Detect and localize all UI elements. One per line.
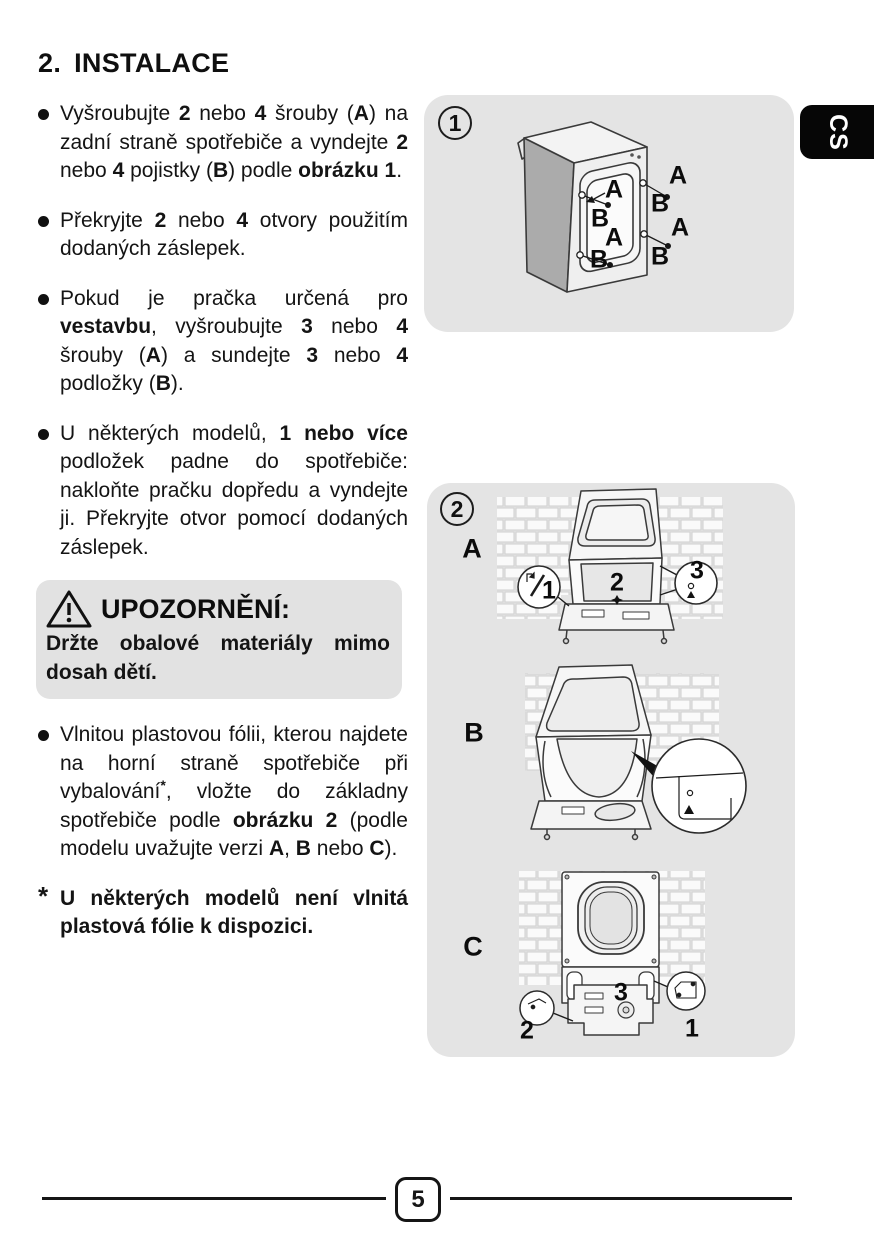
callout-number-3: 3 xyxy=(614,979,628,1008)
bullet-dot-icon xyxy=(38,429,49,440)
text-segment: , vyšroubujte xyxy=(151,315,301,338)
text-segment: šrouby ( xyxy=(266,102,353,125)
bullet-text: Vlnitou plastovou fólii, kterou najdete … xyxy=(60,721,408,864)
text-segment: 4 xyxy=(255,102,267,125)
text-segment: 2 xyxy=(179,102,191,125)
section-title-number: 2. xyxy=(38,48,61,78)
text-segment: nebo xyxy=(191,102,255,125)
section-title-text: INSTALACE xyxy=(74,48,229,78)
page-number-box: 5 xyxy=(395,1177,441,1222)
figure-number: 2 xyxy=(451,496,464,523)
bullet-dot-icon xyxy=(38,216,49,227)
text-segment: ). xyxy=(385,837,398,860)
text-segment: Vyšroubujte xyxy=(60,102,179,125)
bullet-item: Pokud je pračka určená pro vestavbu, vyš… xyxy=(38,285,408,399)
warning-title: UPOZORNĚNÍ: xyxy=(101,594,290,625)
footnote-text: U některých modelů není vlnitá plastová … xyxy=(60,885,408,942)
callout-number-3: 3 xyxy=(690,557,704,586)
callout-number-2: 2 xyxy=(520,1017,534,1046)
warning-header: UPOZORNĚNÍ: xyxy=(46,589,390,629)
text-segment: obrázku 1 xyxy=(298,159,396,182)
text-segment: 4 xyxy=(396,344,408,367)
bullet-dot-icon xyxy=(38,730,49,741)
bullet-item: Vlnitou plastovou fólii, kterou najdete … xyxy=(38,721,408,864)
figure-1: 1 A B A B A B A B xyxy=(424,95,794,332)
text-segment: 1 nebo více xyxy=(280,422,408,445)
callout-label-b: B xyxy=(590,246,608,275)
text-segment: nebo xyxy=(166,209,236,232)
text-segment: . xyxy=(396,159,402,182)
callout-label-a: A xyxy=(671,214,689,243)
text-segment: ). xyxy=(171,372,184,395)
bullet-item: U některých modelů, 1 nebo více podložek… xyxy=(38,420,408,563)
text-segment: Pokud je pračka určená pro xyxy=(60,287,408,310)
figure-number: 1 xyxy=(449,110,462,137)
text-segment: 2 xyxy=(155,209,167,232)
bullet-text: Pokud je pračka určená pro vestavbu, vyš… xyxy=(60,285,408,399)
footnote-marker: * xyxy=(38,881,48,912)
text-segment: podložky ( xyxy=(60,372,156,395)
figure-2-section-c-drawing xyxy=(519,871,705,1035)
text-segment: 4 xyxy=(236,209,248,232)
callout-label-b: B xyxy=(651,243,669,272)
callout-number-1: 1 xyxy=(685,1015,699,1044)
text-segment: 2 xyxy=(396,131,408,154)
text-segment: vestavbu xyxy=(60,315,151,338)
callout-number-2: 2 xyxy=(610,569,624,598)
text-segment: ) a sundejte xyxy=(161,344,306,367)
callout-label-a: A xyxy=(605,176,623,205)
text-segment: 3 xyxy=(306,344,318,367)
bullet-dot-icon xyxy=(38,109,49,120)
figure-2-section-b-drawing xyxy=(525,665,746,840)
text-column: 2.INSTALACE Vyšroubujte 2 nebo 4 šrouby … xyxy=(38,48,408,942)
manual-page: 2.INSTALACE Vyšroubujte 2 nebo 4 šrouby … xyxy=(0,0,874,1240)
version-label-c: C xyxy=(463,932,483,963)
text-segment: nebo xyxy=(318,344,396,367)
text-segment: A xyxy=(269,837,284,860)
text-segment: , xyxy=(284,837,296,860)
text-segment: šrouby ( xyxy=(60,344,146,367)
figure-2-number-badge: 2 xyxy=(440,492,474,526)
bullet-text: U některých modelů, 1 nebo více podložek… xyxy=(60,420,408,563)
text-segment: nebo xyxy=(313,315,397,338)
warning-body: Držte obalové materiály mimo dosah dětí. xyxy=(46,630,390,687)
text-segment: nebo xyxy=(311,837,369,860)
footnote: * U některých modelů není vlnitá plastov… xyxy=(38,885,408,942)
language-tab-label: CS xyxy=(822,114,851,151)
figure-1-number-badge: 1 xyxy=(438,106,472,140)
section-title: 2.INSTALACE xyxy=(38,48,408,79)
callout-label-a: A xyxy=(669,162,687,191)
text-segment: Překryjte xyxy=(60,209,155,232)
text-segment: pojistky ( xyxy=(124,159,213,182)
text-segment: 3 xyxy=(301,315,313,338)
version-label-a: A xyxy=(462,534,482,565)
language-tab: CS xyxy=(800,105,874,159)
text-segment: obrázku 2 xyxy=(233,809,337,832)
bullet-text: Vyšroubujte 2 nebo 4 šrouby (A) na zadní… xyxy=(60,100,408,186)
bullet-item: Vyšroubujte 2 nebo 4 šrouby (A) na zadní… xyxy=(38,100,408,186)
text-segment: B xyxy=(156,372,171,395)
bullet-text: Překryjte 2 nebo 4 otvory použitím dodan… xyxy=(60,207,408,264)
text-segment: 4 xyxy=(396,315,408,338)
bullet-item: Překryjte 2 nebo 4 otvory použitím dodan… xyxy=(38,207,408,264)
text-segment: A xyxy=(354,102,369,125)
warning-triangle-icon xyxy=(46,589,92,629)
text-segment: 4 xyxy=(113,159,125,182)
text-segment: B xyxy=(213,159,228,182)
bullet-dot-icon xyxy=(38,294,49,305)
callout-number-1: 1 xyxy=(542,577,556,606)
text-segment: ) podle xyxy=(228,159,298,182)
text-segment: A xyxy=(146,344,161,367)
washing-machine-rear-drawing xyxy=(518,122,647,292)
version-label-b: B xyxy=(464,718,484,749)
callout-label-b: B xyxy=(651,190,669,219)
text-segment: nebo xyxy=(60,159,113,182)
warning-box: UPOZORNĚNÍ: Držte obalové materiály mimo… xyxy=(36,580,402,699)
figure-2: 2 A B C 1 2 3 3 2 1 xyxy=(427,483,795,1057)
text-segment: C xyxy=(369,837,384,860)
text-segment: U některých modelů, xyxy=(60,422,280,445)
text-segment: B xyxy=(296,837,311,860)
page-number: 5 xyxy=(411,1186,424,1214)
text-segment: podložek padne do spotřebiče: nakloňte p… xyxy=(60,450,408,559)
